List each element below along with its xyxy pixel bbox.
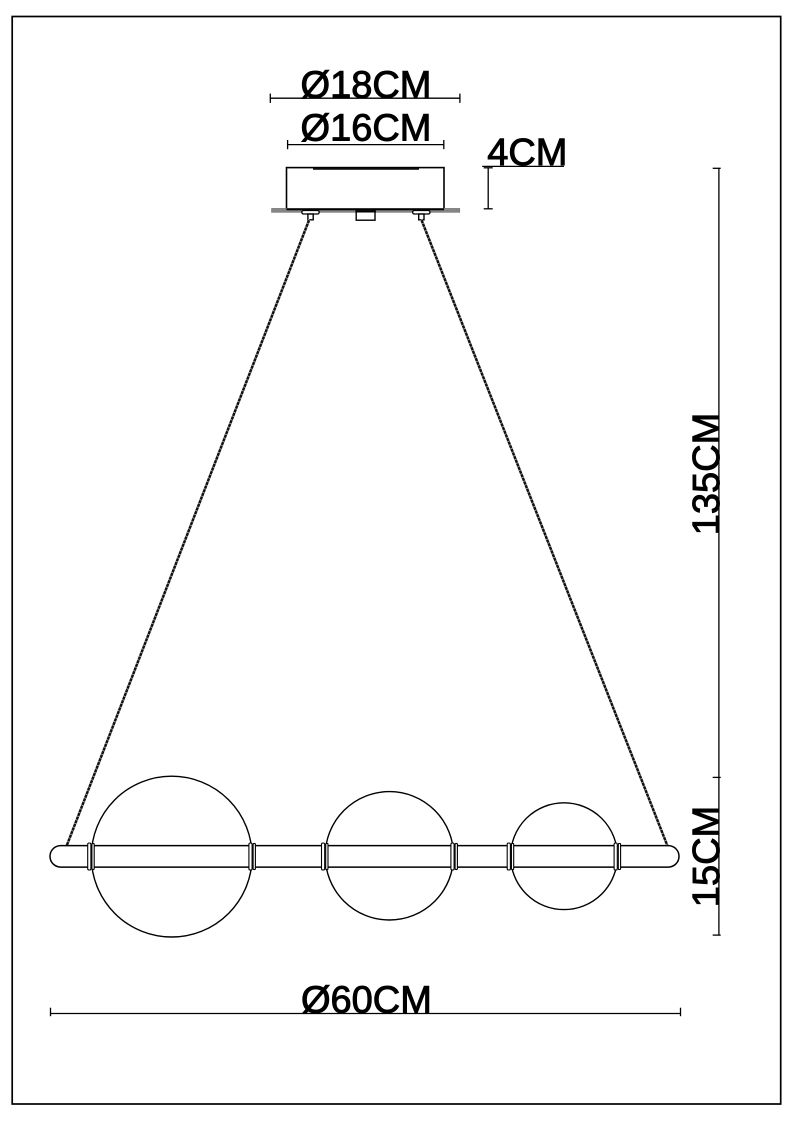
- svg-text:Ø18CM: Ø18CM: [301, 64, 432, 106]
- svg-text:4CM: 4CM: [487, 132, 567, 174]
- svg-text:135CM: 135CM: [686, 413, 728, 536]
- svg-text:Ø60CM: Ø60CM: [301, 980, 432, 1022]
- svg-text:15CM: 15CM: [686, 806, 728, 907]
- svg-text:Ø16CM: Ø16CM: [301, 108, 432, 150]
